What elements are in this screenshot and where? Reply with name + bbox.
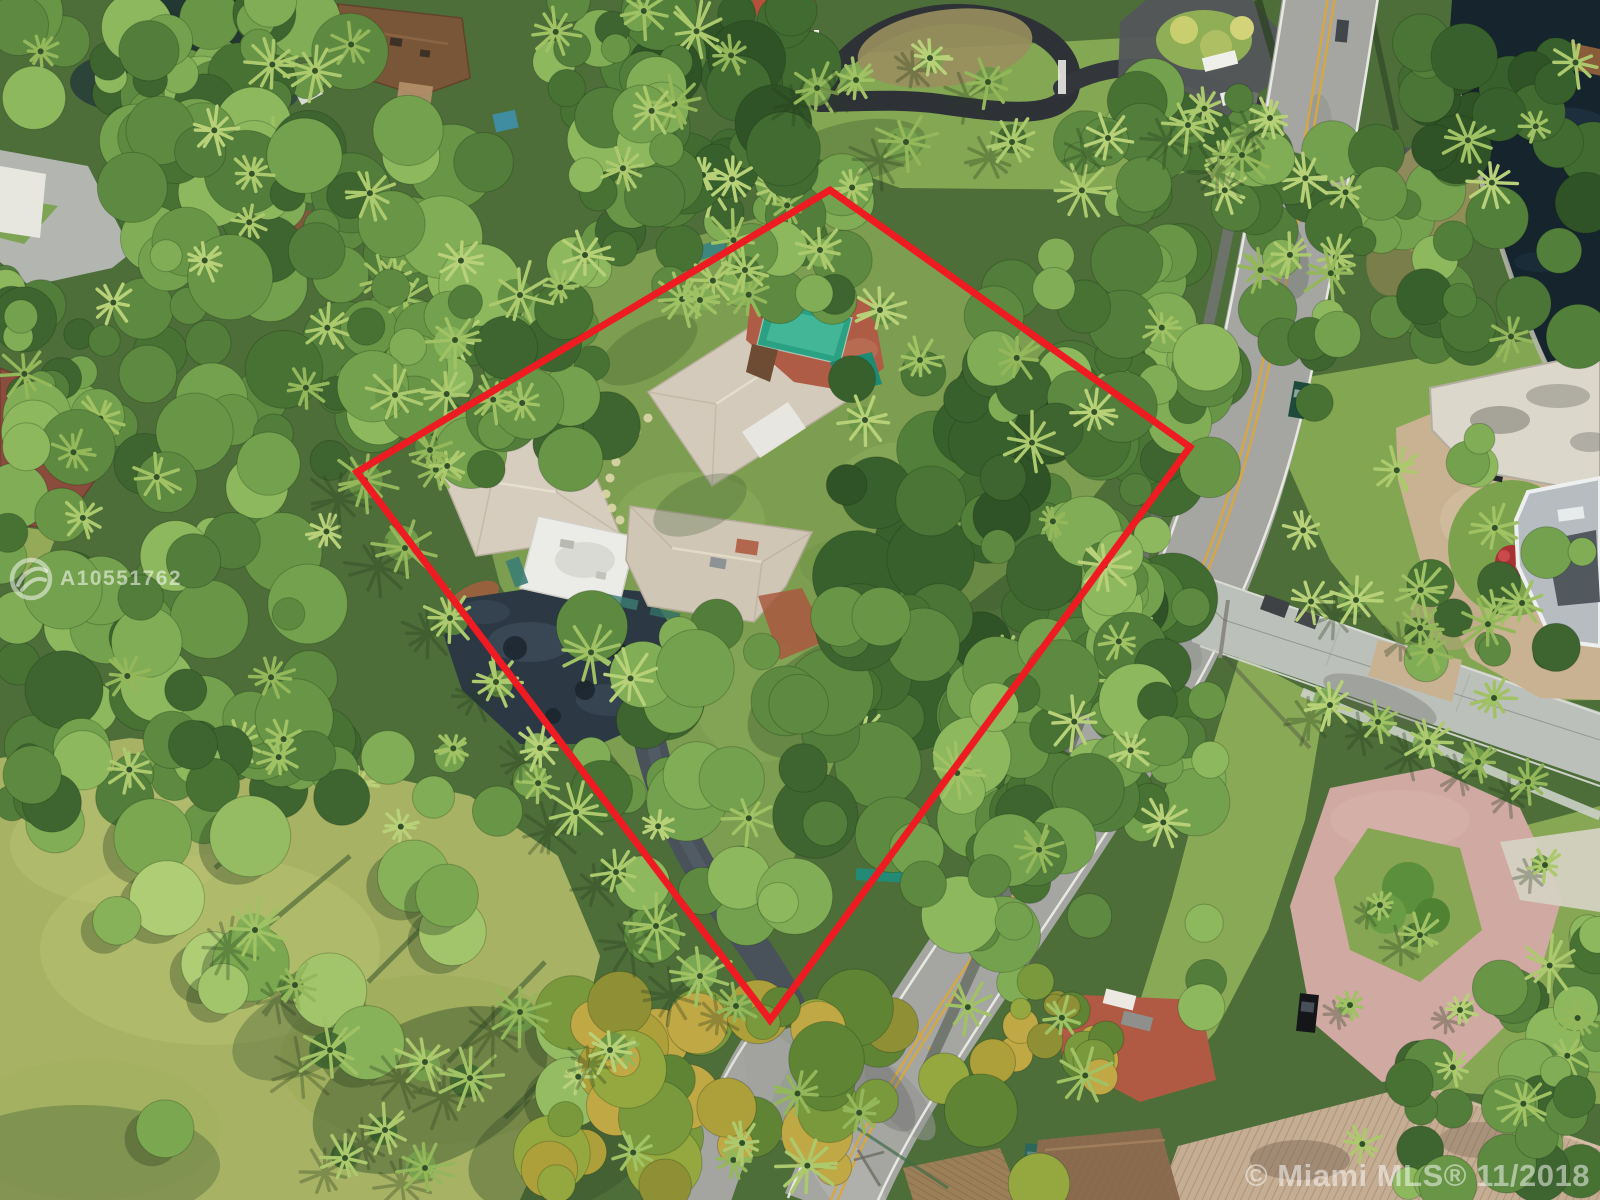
canopy-east-strip-palm-center bbox=[1091, 409, 1097, 415]
canopy-left-mid-palm-center bbox=[154, 474, 160, 480]
shrubs-clay-edge-palm-center bbox=[1082, 1073, 1088, 1079]
canopy-road-east-top-palm-center bbox=[1258, 267, 1264, 273]
canopy-east-strip bbox=[1033, 267, 1075, 309]
canopy-top-center-palm-center bbox=[694, 28, 700, 34]
canopy-left-mid-palm-center bbox=[80, 515, 86, 521]
canopy-lawn-border bbox=[168, 720, 217, 769]
palmrow-bottom-left-lawn-center bbox=[467, 1075, 473, 1081]
canopy-polygon-south bbox=[699, 747, 764, 812]
canopy-polygon-south bbox=[758, 882, 799, 923]
canopy-road-west-palm-center bbox=[1160, 819, 1166, 825]
canopy-polygon-south bbox=[852, 587, 910, 645]
canopy-polygon-south-palm-center bbox=[628, 675, 634, 681]
palms-right-mid-palm-center bbox=[1418, 587, 1424, 593]
mls-logo-icon bbox=[8, 556, 54, 602]
canopy-top-strip-palm-center bbox=[649, 108, 655, 114]
canopy-polygon-south-palm-center bbox=[746, 815, 752, 821]
photo-shape bbox=[1498, 550, 1510, 562]
palmrow-pool-center bbox=[742, 267, 748, 273]
canopy-top-left-b-palm-center bbox=[303, 385, 309, 391]
photo-shape bbox=[390, 37, 403, 47]
canopy-east-strip bbox=[1173, 324, 1240, 391]
canopy-north-neighbor-east-palm-center bbox=[1201, 106, 1207, 112]
canopy-water-overhang bbox=[1431, 24, 1498, 91]
canopy-top-center-palm-center bbox=[729, 176, 735, 182]
palmrow-north-lawn-center bbox=[1105, 135, 1111, 141]
trees-bottom-left-lawn bbox=[198, 964, 248, 1014]
canopy-left-mid-palm-center bbox=[268, 674, 274, 680]
canopy-left-low bbox=[4, 300, 38, 334]
palmrow-north-lawn-center bbox=[903, 139, 909, 145]
canopy-pool-north-palm-center bbox=[730, 237, 736, 243]
canopy-boundary-northwest bbox=[467, 450, 505, 488]
palms-right-mid-palm-center bbox=[1519, 600, 1525, 606]
canopy-north-neighbor-east bbox=[1225, 84, 1254, 113]
palmrow-boundary-west-center bbox=[402, 545, 408, 551]
canopy-pool-north-palm-center bbox=[849, 185, 855, 191]
canopy-road-west-palm-center bbox=[1071, 719, 1077, 725]
palmrow-boundary-west-center bbox=[493, 679, 499, 685]
canopy-se-corner-palm-center bbox=[1564, 1053, 1570, 1059]
palmrow-north-lawn-center bbox=[1239, 152, 1245, 158]
photo-shape bbox=[503, 636, 527, 660]
canopy-top-left-b bbox=[97, 152, 167, 222]
aerial-photo-canvas bbox=[0, 0, 1600, 1200]
canopy-bottom-center bbox=[697, 1078, 756, 1137]
canopy-boundary-northwest-palm-center bbox=[444, 463, 450, 469]
canopy-top-left-b-palm-center bbox=[211, 127, 217, 133]
palmrow-se-lawn-center bbox=[1347, 1002, 1353, 1008]
canopy-lawn-border-palm-center bbox=[126, 767, 132, 773]
palmrow-street-east-center bbox=[1375, 719, 1381, 725]
canopy-water-overhang-palm-center bbox=[1573, 60, 1579, 66]
canopy-road-east-top-palm-center bbox=[1343, 189, 1349, 195]
canopy-road-west bbox=[995, 902, 1033, 940]
canopy-lawn-border bbox=[286, 731, 336, 781]
canopy-se-corner-palm-center bbox=[1575, 1015, 1581, 1021]
canopy-road-east-top-palm-center bbox=[1328, 270, 1334, 276]
canopy-road-west-palm-center bbox=[1128, 747, 1134, 753]
canopy-polygon-south bbox=[803, 801, 848, 846]
canopy-boundary-northwest-palm-center bbox=[444, 391, 450, 397]
canopy-top-strip bbox=[650, 132, 684, 166]
canopy-left-mid bbox=[272, 598, 304, 630]
canopy-top-strip-palm-center bbox=[620, 165, 626, 171]
palmrow-north-lawn-center bbox=[853, 77, 859, 83]
canopy-water-overhang-palm-center bbox=[1465, 137, 1471, 143]
palmrow-polygon-topleft-center bbox=[517, 292, 523, 298]
palms-right-mid-palm-center bbox=[1492, 525, 1498, 531]
palms-right-mid bbox=[1568, 538, 1596, 566]
shrubs-clay-edge bbox=[1027, 1023, 1063, 1059]
palms-right-mid-palm-center bbox=[1308, 598, 1314, 604]
palmrow-boundary-west-center bbox=[447, 615, 453, 621]
palmrow-polygon-topleft-center bbox=[452, 337, 458, 343]
canopy-road-west bbox=[1138, 715, 1188, 765]
canopy-top-left-b-palm-center bbox=[324, 325, 330, 331]
palms-right-mid bbox=[1464, 423, 1495, 454]
palms-right-mid bbox=[1296, 384, 1333, 421]
aerial-property-photo: A10551762 © Miami MLS® 11/2018 bbox=[0, 0, 1600, 1200]
canopy-east-strip-palm-center bbox=[1029, 440, 1035, 446]
canopy-boundary-northwest-palm-center bbox=[490, 397, 496, 403]
canopy-top-left-a-palm-center bbox=[348, 42, 354, 48]
palmrow-street-east-center bbox=[1417, 625, 1423, 631]
canopy-road-east-top bbox=[1353, 166, 1407, 220]
palmrow-polygon-topleft-center bbox=[582, 252, 588, 258]
canopy-left-mid-palm-center bbox=[324, 529, 330, 535]
palmrow-north-lawn-center bbox=[927, 55, 933, 61]
canopy-s-corner bbox=[1553, 1075, 1595, 1117]
palmrow-pool-center bbox=[917, 357, 923, 363]
photo-shape bbox=[1170, 16, 1198, 44]
palmrow-north-lawn-center bbox=[985, 79, 991, 85]
canopy-road-west bbox=[1185, 904, 1223, 942]
canopy-water-overhang bbox=[1536, 228, 1581, 273]
canopy-polygon-south bbox=[779, 744, 827, 792]
canopy-east-strip bbox=[981, 530, 1015, 564]
palmrow-street-east-center bbox=[1525, 779, 1531, 785]
canopy-top-left-b-palm-center bbox=[246, 219, 252, 225]
canopy-east-strip bbox=[1172, 588, 1210, 626]
palmrow-pool-center bbox=[817, 247, 823, 253]
canopy-bottom-center bbox=[588, 971, 652, 1035]
canopy-bottom-center-palm-center bbox=[739, 1140, 745, 1146]
canopy-lawn-border-palm-center bbox=[398, 824, 404, 830]
canopy-left-mid bbox=[165, 669, 207, 711]
canopy-left-mid-palm-center bbox=[70, 449, 76, 455]
palms-right-mid bbox=[1532, 623, 1580, 671]
palms-right-mid bbox=[1521, 527, 1573, 579]
palmrow-se-lawn-center bbox=[1457, 1007, 1463, 1013]
canopy-lawn-border-palm-center bbox=[535, 780, 541, 786]
photo-shape bbox=[1301, 1001, 1315, 1012]
canopy-top-strip bbox=[601, 34, 630, 63]
canopy-road-east-top-palm-center bbox=[1287, 252, 1293, 258]
canopy-polygon-south bbox=[769, 674, 829, 734]
canopy-pool-north-palm-center bbox=[746, 292, 752, 298]
canopy-boundary-northwest-palm-center bbox=[557, 284, 563, 290]
canopy-polygon-south-palm-center bbox=[655, 823, 661, 829]
trees-bottom-left-lawn bbox=[93, 896, 141, 944]
palmrow-boundary-west-center bbox=[613, 869, 619, 875]
canopy-bottom-center-palm-center bbox=[804, 1163, 810, 1169]
watermark-listing-id: A10551762 bbox=[8, 556, 182, 602]
palmrow-bottom-left-lawn-center bbox=[327, 1047, 333, 1053]
canopy-top-left-b-palm-center bbox=[202, 258, 208, 264]
canopy-water-overhang bbox=[1472, 88, 1526, 142]
canopy-top-left-b bbox=[119, 345, 177, 403]
palmrow-street-east-center bbox=[1327, 702, 1333, 708]
canopy-top-strip bbox=[569, 158, 604, 193]
canopy-road-west-palm-center bbox=[1116, 638, 1122, 644]
canopy-bottom-center bbox=[538, 1165, 576, 1200]
palmrow-pool-center bbox=[862, 417, 868, 423]
palms-right-mid-palm-center bbox=[1427, 648, 1433, 654]
palmrow-pool-center bbox=[697, 297, 703, 303]
photo-shape bbox=[1058, 60, 1066, 94]
palmrow-boundary-west-center bbox=[653, 923, 659, 929]
canopy-top-left-b-palm-center bbox=[367, 190, 373, 196]
canopy-left-mid bbox=[237, 432, 300, 495]
canopy-left-mid bbox=[40, 410, 115, 485]
palmrow-polygon-topleft-center bbox=[427, 447, 433, 453]
shrubs-clay-edge bbox=[1010, 998, 1031, 1019]
palmrow-north-lawn-center bbox=[1009, 139, 1015, 145]
canopy-polygon-south bbox=[743, 633, 779, 669]
canopy-bottom-center bbox=[548, 1101, 583, 1136]
canopy-top-left-b bbox=[288, 223, 345, 280]
canopy-lawn-border bbox=[361, 731, 415, 785]
canopy-water-overhang-palm-center bbox=[1508, 333, 1514, 339]
canopy-bottom-center-palm-center bbox=[795, 1091, 801, 1097]
palmrow-pool-center bbox=[877, 307, 883, 313]
canopy-top-left-a bbox=[2, 66, 65, 129]
canopy-left-low bbox=[89, 325, 121, 357]
canopy-left-mid-palm-center bbox=[281, 736, 287, 742]
canopy-east-strip-palm-center bbox=[1014, 355, 1020, 361]
canopy-bottom-center bbox=[944, 1074, 1017, 1147]
photo-shape bbox=[1526, 384, 1590, 408]
canopy-pool-north bbox=[795, 275, 833, 313]
canopy-north-neighbor-east-palm-center bbox=[1222, 187, 1228, 193]
canopy-road-west bbox=[1067, 894, 1111, 938]
watermark-mls-credit: © Miami MLS® 11/2018 bbox=[1245, 1158, 1590, 1194]
palms-right-mid-palm-center bbox=[1485, 621, 1491, 627]
canopy-road-east-top-palm-center bbox=[1302, 175, 1308, 181]
shrubs-clay-edge-palm-center bbox=[1059, 1015, 1065, 1021]
canopy-left-mid bbox=[25, 651, 103, 729]
canopy-lawn-border-palm-center bbox=[276, 754, 282, 760]
canopy-se-corner bbox=[1472, 960, 1527, 1015]
canopy-top-center-palm-center bbox=[728, 52, 734, 58]
canopy-s-corner bbox=[1433, 1089, 1472, 1128]
shrubs-clay-edge bbox=[1017, 963, 1054, 1000]
palmrow-north-lawn-center bbox=[1185, 122, 1191, 128]
palmrow-bottom-left-lawn-center bbox=[252, 927, 258, 933]
trees-bottom-left-lawn bbox=[136, 1100, 194, 1158]
canopy-lawn-border bbox=[412, 776, 454, 818]
canopy-polygon-south bbox=[656, 629, 734, 707]
photo-shape bbox=[608, 504, 617, 513]
photo-shape bbox=[1335, 19, 1349, 42]
palmrow-bottom-left-lawn-center bbox=[517, 1009, 523, 1015]
photo-shape bbox=[575, 680, 595, 700]
canopy-top-strip-palm-center bbox=[641, 8, 647, 14]
canopy-top-left-b-palm-center bbox=[249, 171, 255, 177]
canopy-east-strip-palm-center bbox=[1050, 518, 1056, 524]
palms-right-mid-palm-center bbox=[1491, 695, 1497, 701]
canopy-boundary-northwest bbox=[347, 308, 384, 345]
canopy-road-west bbox=[968, 855, 1011, 898]
canopy-lawn-border bbox=[472, 786, 522, 836]
building-top-left bbox=[0, 166, 46, 238]
canopy-top-left-b bbox=[188, 235, 273, 320]
canopy-boundary-northwest bbox=[448, 285, 482, 319]
canopy-bottom-center-palm-center bbox=[965, 1004, 971, 1010]
canopy-boundary-northwest bbox=[372, 269, 410, 307]
palmrow-boundary-west-center bbox=[733, 1003, 739, 1009]
palmrow-street-east-center bbox=[1475, 759, 1481, 765]
canopy-polygon-east bbox=[896, 466, 966, 536]
canopy-north-neighbor-east-palm-center bbox=[1079, 187, 1085, 193]
palmrow-street-east-center bbox=[1425, 739, 1431, 745]
canopy-pool-north-palm-center bbox=[710, 278, 716, 284]
canopy-water-overhang bbox=[1496, 276, 1551, 331]
listing-id-text: A10551762 bbox=[60, 567, 182, 591]
canopy-pool-north-palm-center bbox=[784, 202, 790, 208]
canopy-bottom-center-palm-center bbox=[856, 1110, 862, 1116]
palmrow-bottom-left-lawn-center bbox=[607, 1047, 613, 1053]
canopy-s-corner bbox=[1386, 1059, 1433, 1106]
canopy-top-left-a-palm-center bbox=[312, 68, 318, 74]
palmrow-bottom-left-lawn-center bbox=[422, 1059, 428, 1065]
canopy-polygon-east bbox=[826, 465, 867, 506]
palmrow-street-east-center bbox=[1353, 597, 1359, 603]
palms-right-mid-palm-center bbox=[1394, 467, 1400, 473]
canopy-s-corner-palm-center bbox=[1450, 1064, 1456, 1070]
canopy-top-center bbox=[746, 112, 820, 186]
canopy-top-left-b bbox=[373, 95, 443, 165]
canopy-top-strip-palm-center bbox=[553, 29, 559, 35]
palmrow-boundary-west-center bbox=[573, 809, 579, 815]
canopy-left-mid bbox=[310, 440, 350, 480]
canopy-water-overhang-palm-center bbox=[1489, 180, 1495, 186]
canopy-top-left-a bbox=[119, 21, 179, 81]
trees-bottom-left-lawn bbox=[210, 796, 291, 877]
canopy-top-left-b-palm-center bbox=[458, 258, 464, 264]
canopy-left-low-palm-center bbox=[110, 300, 116, 306]
photo-shape bbox=[616, 516, 625, 525]
photo-shape bbox=[602, 490, 611, 499]
canopy-top-left-b bbox=[186, 320, 231, 365]
palmrow-boundary-west-center bbox=[537, 745, 543, 751]
canopy-water-overhang bbox=[1535, 62, 1577, 104]
canopy-top-left-a-palm-center bbox=[38, 48, 44, 54]
canopy-polygon-south-palm-center bbox=[588, 649, 594, 655]
canopy-bottom-center-palm-center bbox=[630, 1149, 636, 1155]
canopy-polygon-east bbox=[829, 356, 876, 403]
canopy-water-overhang bbox=[1433, 221, 1473, 261]
canopy-top-left-b bbox=[454, 132, 514, 192]
photo-shape bbox=[1230, 16, 1254, 40]
canopy-boundary-northwest-palm-center bbox=[519, 400, 525, 406]
canopy-road-west bbox=[900, 861, 946, 907]
canopy-boundary-northwest bbox=[535, 281, 594, 340]
canopy-top-strip bbox=[625, 167, 685, 227]
canopy-left-mid-palm-center bbox=[124, 673, 130, 679]
palmrow-bottom-left-lawn-center bbox=[342, 1155, 348, 1161]
canopy-top-left-b bbox=[267, 118, 342, 193]
canopy-se-corner-palm-center bbox=[1547, 963, 1553, 969]
canopy-s-corner-palm-center bbox=[1359, 1141, 1365, 1147]
photo-shape bbox=[606, 474, 615, 483]
photo-shape bbox=[644, 414, 653, 423]
canopy-s-corner-palm-center bbox=[1520, 1101, 1526, 1107]
canopy-bottom-center-palm-center bbox=[730, 1157, 736, 1163]
canopy-top-left-a-palm-center bbox=[269, 61, 275, 67]
canopy-boundary-northwest bbox=[538, 427, 603, 492]
trees-bottom-left-lawn bbox=[416, 864, 479, 927]
canopy-top-left-b bbox=[245, 330, 323, 408]
palmrow-bottom-left-lawn-center bbox=[292, 982, 298, 988]
palmrow-polygon-topleft-center bbox=[392, 392, 398, 398]
palmrow-se-lawn-center bbox=[1417, 932, 1423, 938]
canopy-road-west bbox=[1178, 984, 1225, 1031]
photo-shape bbox=[420, 49, 431, 57]
palmrow-se-lawn-center bbox=[1542, 862, 1548, 868]
canopy-road-east-top bbox=[1314, 311, 1360, 357]
canopy-east-strip-palm-center bbox=[1159, 325, 1165, 331]
canopy-left-mid bbox=[3, 423, 51, 471]
parked-black-car bbox=[1296, 993, 1319, 1033]
canopy-road-west bbox=[1188, 682, 1225, 719]
palms-right-mid-palm-center bbox=[1300, 527, 1306, 533]
canopy-lawn-border-palm-center bbox=[450, 745, 456, 751]
palmrow-boundary-west-center bbox=[697, 973, 703, 979]
canopy-water-overhang bbox=[1443, 283, 1477, 317]
canopy-water-overhang-palm-center bbox=[1533, 123, 1539, 129]
canopy-road-west bbox=[1192, 741, 1229, 778]
canopy-road-east-top bbox=[1347, 227, 1376, 256]
palmrow-se-lawn-center bbox=[1377, 902, 1383, 908]
palmrow-bottom-left-lawn-center bbox=[422, 1165, 428, 1171]
canopy-east-strip bbox=[980, 455, 1026, 501]
canopy-road-west-palm-center bbox=[1036, 847, 1042, 853]
canopy-top-left-b bbox=[150, 240, 182, 272]
palmrow-bottom-left-lawn-center bbox=[382, 1127, 388, 1133]
canopy-left-low-palm-center bbox=[21, 371, 27, 377]
palmrow-north-lawn-center bbox=[1267, 115, 1273, 121]
canopy-lawn-border bbox=[3, 746, 61, 804]
